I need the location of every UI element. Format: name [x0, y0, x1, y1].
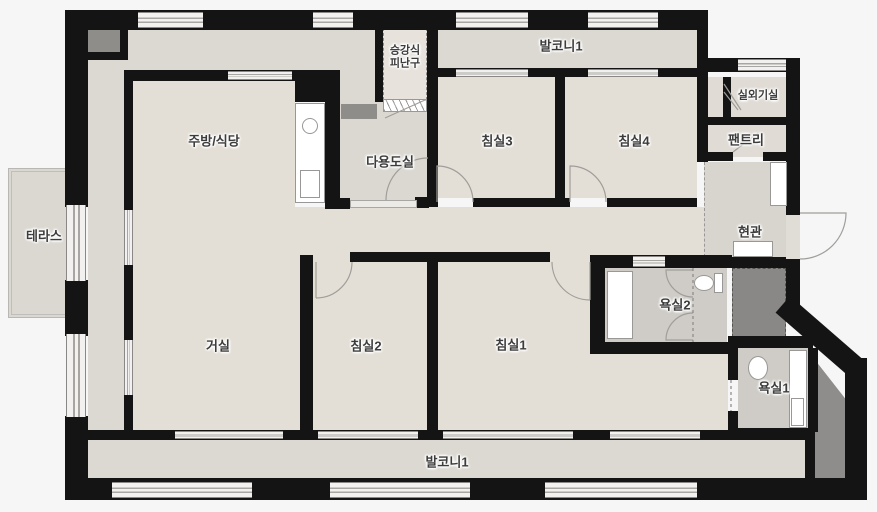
label-entrance: 현관 [738, 226, 762, 241]
door-line-hatch [385, 100, 425, 118]
label-outdoor-unit-room: 실외기실 [738, 90, 778, 103]
label-bedroom2: 침실2 [350, 340, 381, 355]
label-evac-hatch-line2: 피난구 [390, 57, 420, 70]
label-evac-hatch-line1: 승강식 [390, 44, 420, 57]
label-balcony-bottom: 발코니1 [425, 456, 468, 471]
door-swing-overlay [0, 0, 877, 512]
door-arc-entrance [800, 213, 846, 259]
label-bathroom2: 욕실2 [659, 299, 690, 314]
label-bathroom1: 욕실1 [758, 382, 789, 397]
label-evac-hatch: 승강식 피난구 [390, 44, 420, 69]
door-arc-bedroom2 [316, 262, 352, 298]
floor-plan-canvas: 테라스 주방/식당 승강식 피난구 발코니1 침실3 침실4 실외기실 팬트리 … [0, 0, 877, 512]
label-bedroom4: 침실4 [618, 135, 649, 150]
door-arc-bedroom3 [437, 166, 473, 202]
label-balcony-top: 발코니1 [539, 40, 582, 55]
label-terrace: 테라스 [26, 230, 62, 245]
door-arc-bedroom4 [570, 166, 606, 202]
label-bedroom1: 침실1 [495, 339, 526, 354]
door-arc-bathroom2-inner [666, 313, 693, 340]
label-bedroom3: 침실3 [481, 135, 512, 150]
label-pantry: 팬트리 [728, 134, 764, 149]
label-utility-room: 다용도실 [366, 156, 414, 171]
label-kitchen-dining: 주방/식당 [188, 135, 239, 150]
door-arc-bedroom1 [552, 262, 590, 300]
label-living-room: 거실 [206, 340, 230, 355]
door-arc-bathroom2-outer [666, 270, 693, 297]
